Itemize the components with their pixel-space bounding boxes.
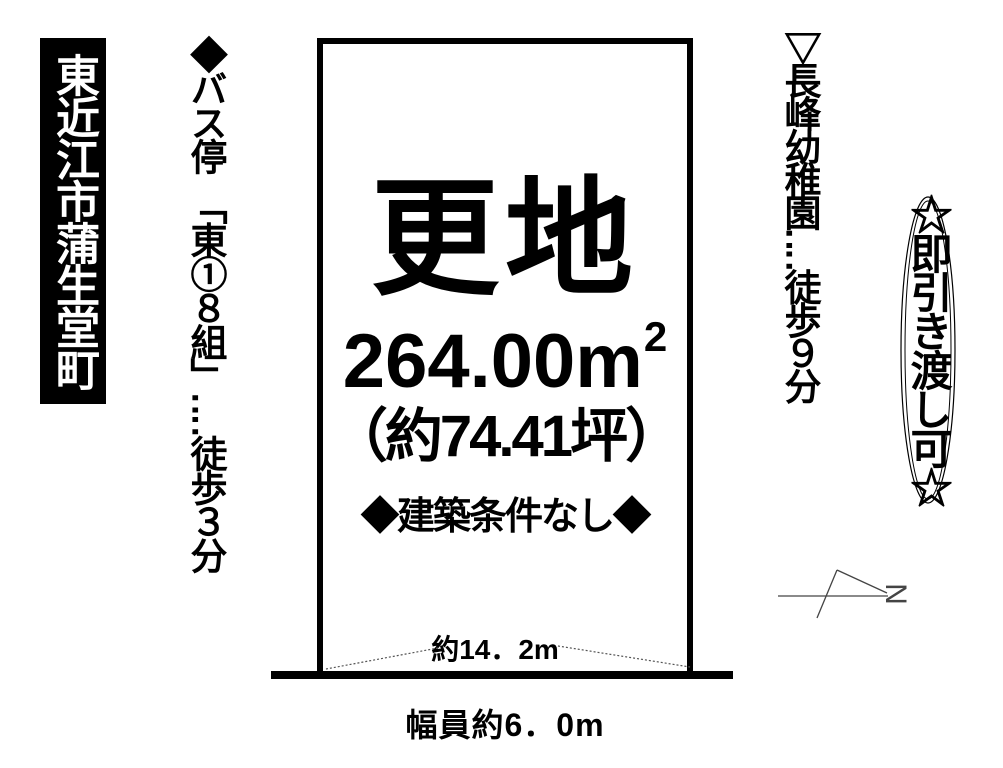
kindergarten-note: ▽長峰幼稚園‥‥徒歩９分 [781,29,818,400]
bus-stop-note: ◆バス停 「東①８組」‥‥徒歩３分 [187,36,224,571]
north-letter: N [878,583,912,605]
area-exponent: 2 [644,316,667,358]
location-label: 東近江市蒲生堂町 [51,53,95,389]
dimension-leader-lines [280,625,720,675]
road-width-label: 幅員約6．0m [317,700,693,746]
area-value: 264.00 [343,324,575,400]
area-sqm-label: 264.00m2 [343,324,667,400]
area-tsubo-label: （約74.41坪） [330,408,680,466]
plot-outline: 更地 264.00m2 （約74.41坪） ◆建築条件なし◆ [317,38,693,671]
location-box: 東近江市蒲生堂町 [40,38,106,404]
handover-badge-text: ☆即引き渡し可☆ [907,193,949,505]
road-line [271,671,733,679]
land-flyer: 東近江市蒲生堂町 ◆バス停 「東①８組」‥‥徒歩３分 更地 264.00m2 （… [0,0,1003,768]
building-conditions-label: ◆建築条件なし◆ [361,498,649,536]
area-unit: m [575,324,643,400]
land-status-label: 更地 [371,176,639,304]
